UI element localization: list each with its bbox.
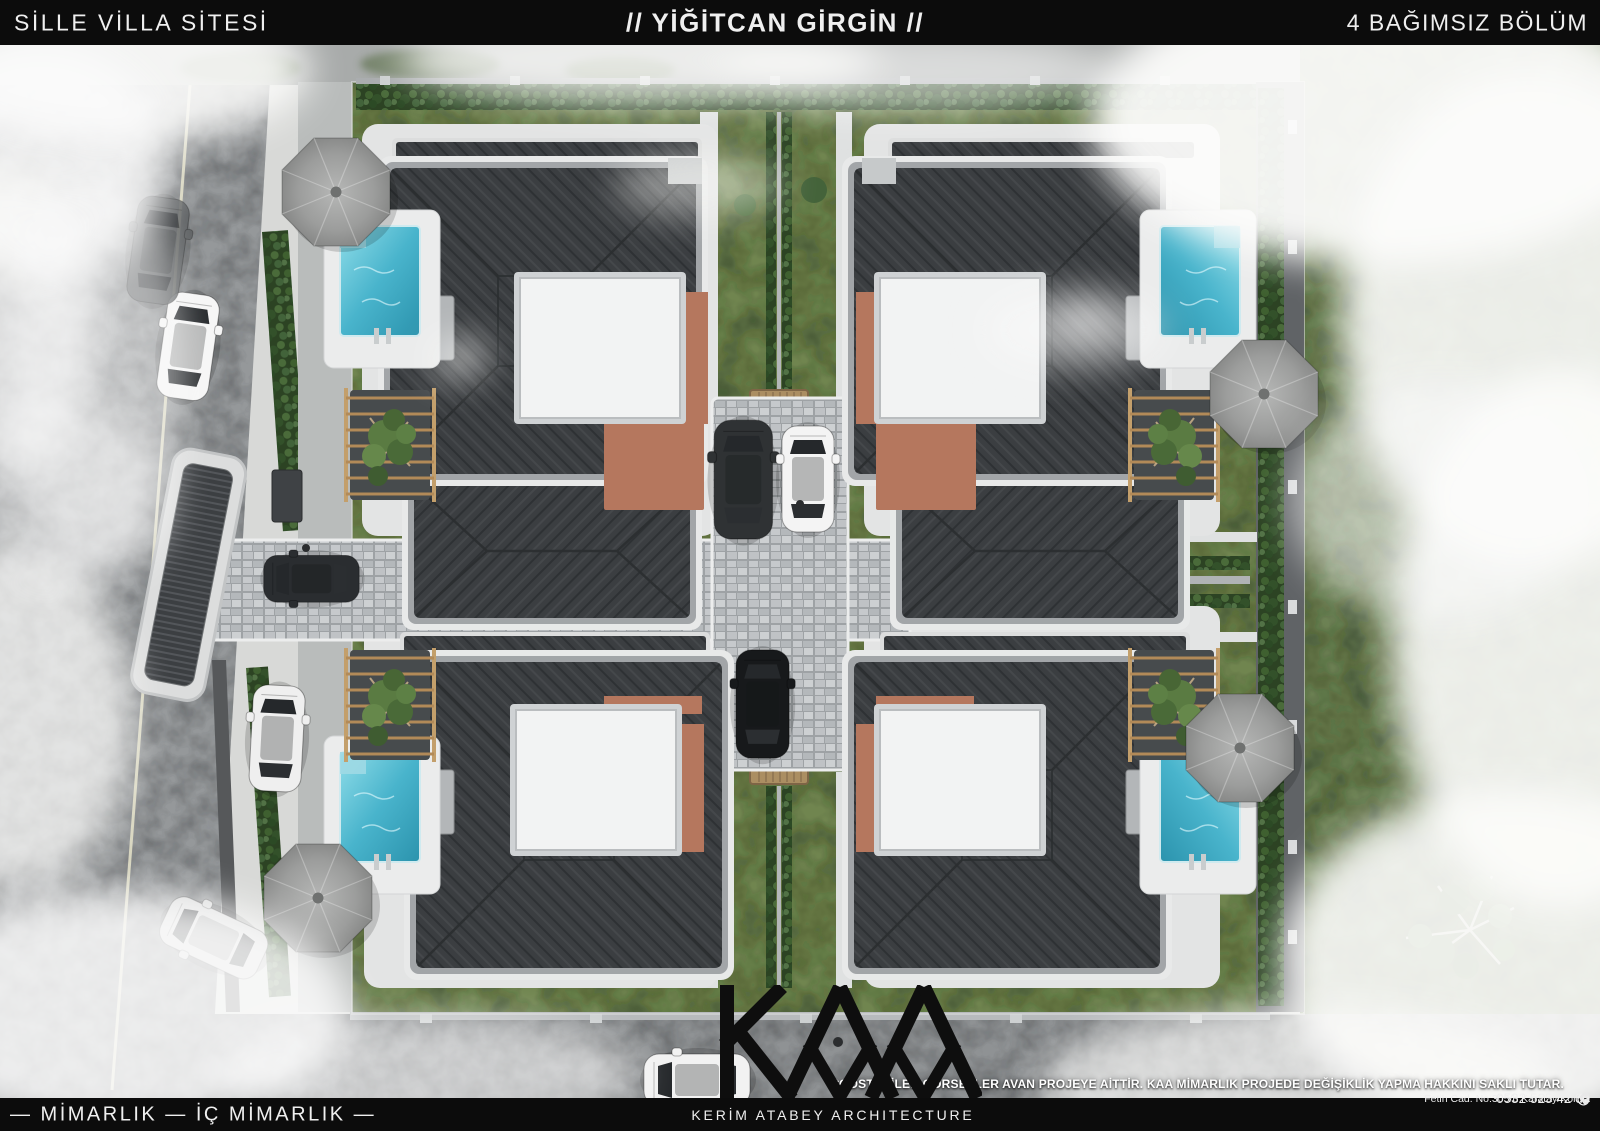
- site-plan-render: [0, 0, 1600, 1131]
- guard-hut: [272, 470, 302, 522]
- roof-cube: [514, 272, 686, 424]
- pergola-top-right: [1130, 388, 1218, 502]
- bottom-title-bar: — MİMARLIK — İÇ MİMARLIK — KERİM ATABEY …: [0, 1098, 1600, 1131]
- top-title-bar: SİLLE VİLLA SİTESİ // YİĞİTCAN GİRGİN //…: [0, 0, 1600, 45]
- roof-cube: [874, 704, 1046, 856]
- site-name: SİLLE VİLLA SİTESİ: [14, 9, 269, 36]
- services-label: — MİMARLIK — İÇ MİMARLIK —: [10, 1103, 376, 1126]
- car-suv-black: [708, 416, 780, 546]
- roof-cube: [510, 704, 682, 856]
- kaa-logo: [712, 985, 982, 1099]
- architecture-brand: KERİM ATABEY ARCHITECTURE: [691, 1107, 974, 1123]
- address-text: Fetih Cad. No:305/b Karatay/Konya: [1424, 1093, 1590, 1106]
- pergola-top-left: [346, 388, 434, 502]
- unit-count: 4 BAĞIMSIZ BÖLÜM: [1347, 9, 1588, 36]
- car-white-sedan: [776, 422, 840, 538]
- car-black-sport: [730, 646, 795, 764]
- pergola-bottom-left: [346, 648, 434, 762]
- car-black-entrance: [260, 550, 364, 608]
- project-owner: // YİĞİTCAN GİRGİN //: [626, 7, 924, 38]
